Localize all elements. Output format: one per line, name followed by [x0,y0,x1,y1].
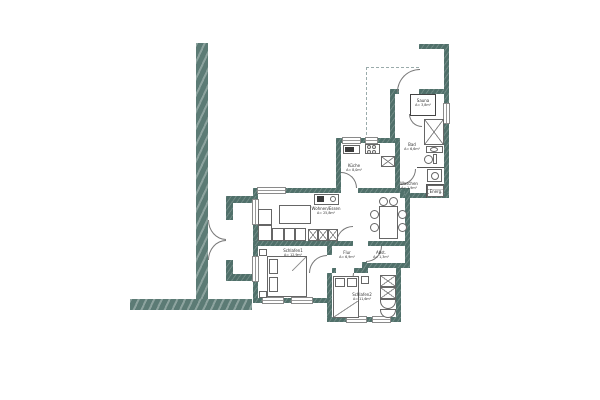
dining-chair-5 [379,197,388,206]
sofa-section-1 [258,209,272,225]
window-schlafen1-left [252,256,259,282]
bed2-pillow-1 [335,278,345,287]
roof-dash-line-h [366,67,419,68]
washbasin [430,147,438,152]
wall-schlafen2-top-a [332,268,336,273]
dining-chair-4 [398,223,407,232]
freestanding-wall-vertical [196,43,208,306]
bed1-pillow-2 [269,277,278,292]
window-kitchen-2 [365,137,378,144]
window-schlafen1-bottom-2 [291,297,313,304]
kitchen-door-arc [341,172,357,188]
porch-door-arc-2 [208,240,226,260]
porch-door-arc-1 [208,220,226,240]
nightstand-2 [361,276,369,284]
wall-wing-left [390,89,395,140]
roof-dash-line-v [366,67,367,140]
window-schlafen1-bottom-1 [262,297,284,304]
dining-chair-2 [370,223,379,232]
kitchen-sink-basin [345,147,354,152]
living-flur-door-arc [336,226,353,243]
floor-plan: Wohnen/EssenA= 25,8m² KücheA= 8,0m² BadA… [0,0,600,400]
room-label-energ: Energ. [429,190,443,195]
dining-chair-3 [398,210,407,219]
kitchen-cabinet [381,156,395,167]
terrace-entry-door-arc [397,69,420,92]
living-cabinet-2 [318,229,328,241]
room-label-abst: Abst.A= 1,3m² [373,251,389,260]
window-living-top [257,187,286,194]
wc-bowl [424,155,433,164]
dining-chair-1 [370,210,379,219]
sofa-section-4 [284,228,295,241]
room-label-kueche: KücheA= 8,0m² [346,164,362,173]
wall-schlafen1-right-top [327,246,332,255]
wc-tank [433,154,437,164]
wardrobe-x1 [380,275,396,287]
room-label-schlafen1: Schlafen1A= 12,9m² [283,249,303,258]
living-cabinet-3 [328,229,338,241]
dining-chair-6 [389,197,398,206]
wardrobe-rail-1 [380,299,396,309]
shower [424,119,444,145]
living-cabinet-1 [308,229,318,241]
washing-machine-drum [431,172,439,180]
bed1-pillow-1 [269,259,278,274]
nightstand-1b [259,291,267,298]
room-label-waschen: WaschenA= 1,9m² [400,182,418,191]
room-label-bad: BadA= 6,6m² [404,143,420,152]
sofa-section-3 [272,228,284,241]
stove-burner-1 [367,145,371,149]
room-label-schlafen2: Schlafen2A= 11,6m² [352,293,372,302]
wall-schlafen2-top-b [354,268,368,273]
partition-waschen [417,167,444,168]
wall-abst-bottom [362,263,410,268]
room-label-wohnen: Wohnen/EssenA= 25,8m² [312,207,341,216]
wardrobe-x2 [380,287,396,299]
freestanding-wall-horizontal [130,299,252,310]
dining-table [379,206,398,239]
window-bad-right [443,103,450,124]
schlafen1-door-arc [309,255,327,273]
room-label-sauna: SaunaA= 3,8m² [415,99,431,108]
bed2-blanket-fold [334,301,358,317]
coffee-table [279,205,311,224]
stove-burner-4 [372,150,376,154]
nightstand-1a [259,249,267,256]
sideboard-basin [330,196,336,202]
room-label-flur: FlurA= 6,9m² [339,251,355,260]
sofa-section-2 [258,225,272,241]
stove-burner-3 [367,150,371,154]
window-kitchen-1 [342,137,361,144]
wall-schlafen2-right [396,268,401,322]
stove-burner-2 [372,145,376,149]
wall-porch-left-a [226,196,233,220]
bed1-blanket-fold [292,257,306,271]
bed2-pillow-2 [347,278,357,287]
sideboard-sink [317,196,324,202]
sofa-section-5 [295,228,306,241]
